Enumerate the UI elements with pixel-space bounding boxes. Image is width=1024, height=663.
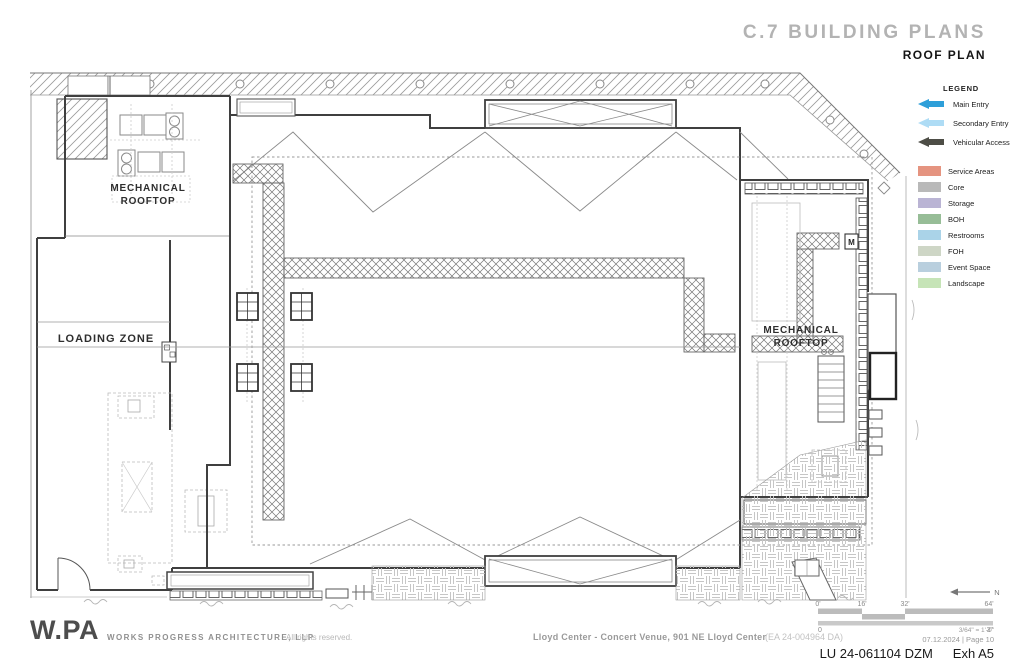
legend-label: Landscape bbox=[948, 279, 985, 288]
legend: LEGEND Main Entry Secondary Entry Vehicu… bbox=[918, 84, 1018, 291]
color-swatch bbox=[918, 246, 941, 256]
label-mechanical-rooftop-right: MECHANICAL ROOFTOP bbox=[740, 324, 862, 350]
canopy-top-left bbox=[237, 99, 295, 116]
vehicular-access-arrow-icon bbox=[918, 137, 949, 147]
loading-zone-area bbox=[37, 240, 227, 590]
color-swatch bbox=[918, 278, 941, 288]
firm-logo: W.PA bbox=[30, 615, 99, 646]
scale-tick-32: 32' bbox=[900, 601, 909, 608]
color-swatch bbox=[918, 230, 941, 240]
main-entry-arrow-icon bbox=[918, 99, 949, 109]
legend-storage: Storage bbox=[918, 195, 1018, 211]
legend-core: Core bbox=[918, 179, 1018, 195]
legend-title: LEGEND bbox=[918, 84, 1004, 93]
legend-event-space: Event Space bbox=[918, 259, 1018, 275]
scale-tick-64: 64' bbox=[984, 601, 993, 608]
sheet: M bbox=[0, 0, 1024, 663]
legend-vehicular-access: Vehicular Access bbox=[918, 134, 1018, 150]
label-mechanical-rooftop-left: MECHANICAL ROOFTOP bbox=[86, 182, 210, 208]
legend-label: Secondary Entry bbox=[953, 119, 1008, 128]
project-title: Lloyd Center - Concert Venue, 901 NE Llo… bbox=[533, 632, 766, 642]
sheet-title: C.7 BUILDING PLANS bbox=[743, 22, 986, 44]
permit-row: LU 24-061104 DZM Exh A5 bbox=[820, 646, 994, 661]
scale-ratio: 3/64" = 1'-0" bbox=[820, 627, 994, 634]
label-loading-zone: LOADING ZONE bbox=[47, 333, 165, 345]
title-block: C.7 BUILDING PLANS ROOF PLAN bbox=[743, 22, 986, 62]
door-swing bbox=[58, 558, 90, 590]
secondary-entry-arrow-icon bbox=[918, 118, 949, 128]
marker-m-label: M bbox=[848, 238, 855, 247]
legend-main-entry: Main Entry bbox=[918, 96, 1018, 112]
color-swatch bbox=[918, 166, 941, 176]
legend-label: Service Areas bbox=[948, 167, 994, 176]
legend-areas: Service Areas Core Storage BOH Restrooms… bbox=[918, 163, 1018, 291]
legend-restrooms: Restrooms bbox=[918, 227, 1018, 243]
exhibit-number: Exh A5 bbox=[953, 646, 994, 661]
skylight-canopy-top bbox=[485, 100, 676, 128]
scale-tick-16: 16' bbox=[857, 601, 866, 608]
legend-label: Core bbox=[948, 183, 964, 192]
permit-number: LU 24-061104 DZM bbox=[820, 646, 933, 661]
color-swatch bbox=[918, 262, 941, 272]
sheet-subtitle: ROOF PLAN bbox=[743, 48, 986, 62]
roof-plan-drawing: M bbox=[0, 0, 1024, 663]
sheet-stamp: 3/64" = 1'-0" 07.12.2024 | Page 10 LU 24… bbox=[820, 627, 994, 661]
legend-secondary-entry: Secondary Entry bbox=[918, 115, 1018, 131]
legend-label: Storage bbox=[948, 199, 974, 208]
color-swatch bbox=[918, 214, 941, 224]
bike-racks bbox=[352, 585, 372, 600]
roof-walkway-crosshatch bbox=[233, 164, 735, 520]
scale-tick-0: 0' bbox=[815, 601, 820, 608]
legend-label: Restrooms bbox=[948, 231, 984, 240]
legend-label: Event Space bbox=[948, 263, 991, 272]
east-property-line bbox=[906, 176, 918, 598]
north-arrow: N bbox=[950, 588, 1000, 597]
legend-landscape: Landscape bbox=[918, 275, 1018, 291]
color-swatch bbox=[918, 182, 941, 192]
firm-name: WORKS PROGRESS ARCHITECTURE, LLP bbox=[107, 633, 315, 642]
stair bbox=[818, 350, 844, 423]
color-swatch bbox=[918, 198, 941, 208]
legend-label: FOH bbox=[948, 247, 964, 256]
legend-label: BOH bbox=[948, 215, 964, 224]
legend-foh: FOH bbox=[918, 243, 1018, 259]
legend-label: Vehicular Access bbox=[953, 138, 1010, 147]
legend-service-areas: Service Areas bbox=[918, 163, 1018, 179]
corner-diamond-marker bbox=[878, 182, 890, 194]
legend-boh: BOH bbox=[918, 211, 1018, 227]
entry-canopy-bottom bbox=[485, 556, 676, 586]
legend-label: Main Entry bbox=[953, 100, 989, 109]
north-label: N bbox=[994, 588, 999, 597]
date-page: 07.12.2024 | Page 10 bbox=[820, 635, 994, 644]
rights-text: All rights reserved. bbox=[286, 633, 352, 642]
